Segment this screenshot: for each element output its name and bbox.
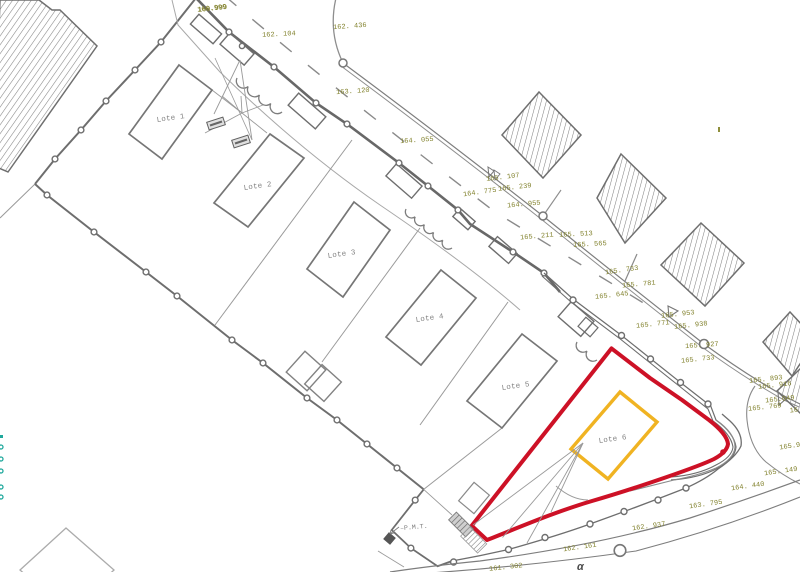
svg-text:16: 16 <box>789 407 798 416</box>
